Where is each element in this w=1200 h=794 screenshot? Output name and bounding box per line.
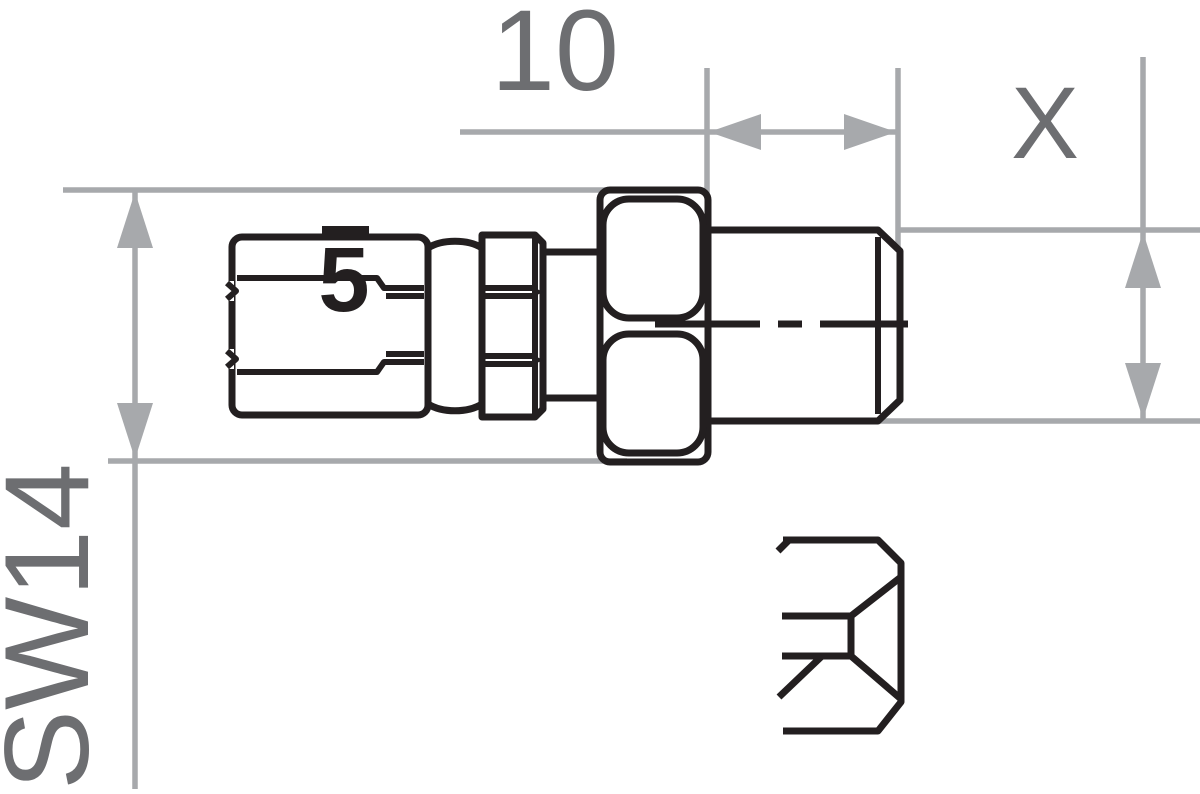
dim-arrow-right-icon xyxy=(844,114,896,150)
neck-cylinder xyxy=(543,252,599,398)
hex-upper-facet xyxy=(603,199,703,318)
technical-drawing-canvas: 10 X SW14 5 xyxy=(0,0,1200,794)
thread-length-label: 10 xyxy=(491,0,619,115)
dim-arrow-up-icon xyxy=(1125,232,1161,288)
hex-lower-facet xyxy=(603,334,703,453)
cone-seat-detail-view xyxy=(778,540,901,731)
detail-outline xyxy=(783,540,901,731)
detail-cone-lower-flank xyxy=(851,656,901,699)
thread-diameter-label: X xyxy=(1011,66,1079,180)
threaded-stud xyxy=(655,230,908,421)
sleeve-inner-bottom-line xyxy=(237,362,424,372)
detail-bore-profile xyxy=(782,616,851,656)
barrel-section xyxy=(428,235,482,417)
dim-arrow-up-icon xyxy=(117,192,153,248)
part-marking-label: 5 xyxy=(318,229,369,331)
fitting-dimension-drawing: 10 X SW14 5 xyxy=(0,0,1200,794)
wrench-size-label: SW14 xyxy=(0,463,114,790)
ribbed-collar xyxy=(482,235,543,417)
barrel-top-curve xyxy=(428,241,482,248)
detail-chamfer-flank xyxy=(779,656,822,697)
barrel-bottom-curve xyxy=(428,404,482,411)
dim-arrow-left-icon xyxy=(709,114,761,150)
dim-arrow-down-icon xyxy=(117,403,153,459)
dim-arrow-down-icon xyxy=(1125,363,1161,419)
detail-cone-upper-flank xyxy=(851,577,901,616)
